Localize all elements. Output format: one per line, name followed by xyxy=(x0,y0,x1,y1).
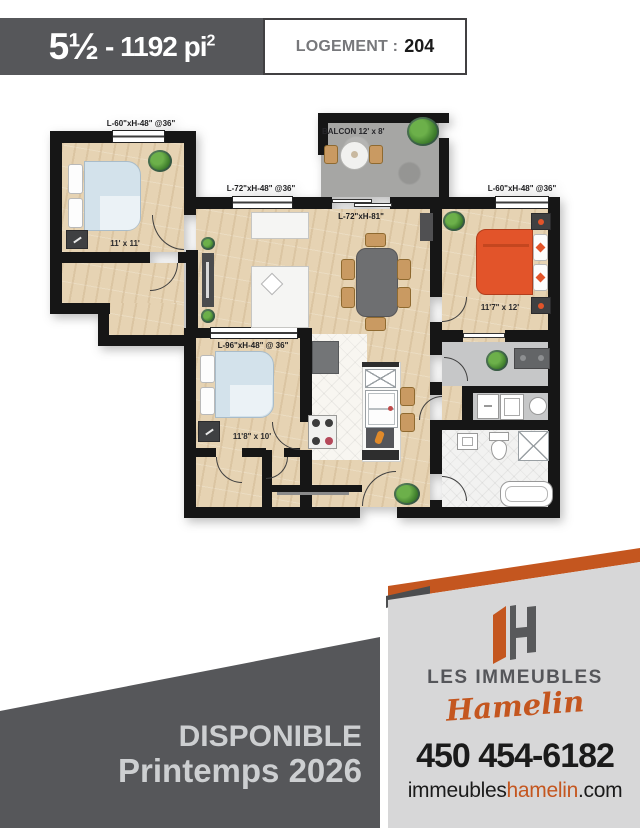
shower xyxy=(518,431,549,461)
window xyxy=(210,327,298,339)
island-stool xyxy=(400,387,415,406)
window-label-bedroom2: L-96"xH-48" @ 36" xyxy=(213,341,293,350)
phone-number: 450 454-6182 xyxy=(390,737,640,776)
laundry-sink xyxy=(500,394,524,420)
bedroom1-closet-nook-floor xyxy=(109,303,184,335)
wall xyxy=(293,197,327,209)
balcony-chair xyxy=(324,145,338,164)
plant-icon xyxy=(486,350,508,371)
wall xyxy=(186,250,198,338)
room-size-bedroom3: 11'7" x 12' xyxy=(470,303,530,312)
availability-text: DISPONIBLE Printemps 2026 xyxy=(60,721,362,789)
wall xyxy=(265,485,362,492)
plant-icon xyxy=(201,237,215,250)
dishwasher xyxy=(365,369,396,388)
hamelin-logo-icon xyxy=(490,598,540,664)
wall xyxy=(184,197,232,209)
bedroom2-pillow xyxy=(200,387,215,415)
console-shelf xyxy=(420,213,433,241)
wall xyxy=(442,330,463,342)
wall xyxy=(98,335,196,346)
room-size-bedroom1: 11' x 11' xyxy=(95,239,155,248)
window xyxy=(112,130,165,143)
bedroom1-nightstand xyxy=(66,230,88,249)
sofa-loveseat xyxy=(251,212,309,239)
fridge xyxy=(312,341,339,374)
wall xyxy=(390,197,449,209)
sofa-sectional xyxy=(251,266,309,328)
dining-chair xyxy=(397,259,411,280)
bedroom3-nightstand xyxy=(531,213,551,230)
wall xyxy=(430,382,442,395)
wall xyxy=(442,420,548,430)
bedroom3-bed xyxy=(476,229,533,295)
plant-icon xyxy=(407,117,439,146)
island-stool xyxy=(400,413,415,432)
balcony-chair xyxy=(369,145,383,164)
dining-chair xyxy=(365,317,386,331)
cutting-board xyxy=(366,428,394,448)
wall xyxy=(300,338,312,422)
wall xyxy=(184,328,210,338)
tv-console xyxy=(202,253,214,307)
bedroom1-pillow xyxy=(68,198,83,228)
wall xyxy=(184,338,196,518)
wall xyxy=(430,500,442,518)
dining-chair xyxy=(397,287,411,308)
bedroom1-pillow xyxy=(68,164,83,194)
plant-icon xyxy=(201,309,215,323)
dining-table xyxy=(356,248,398,317)
plant-icon xyxy=(394,483,420,505)
island-counter-end xyxy=(362,450,399,460)
wall xyxy=(430,420,442,474)
bedroom1-sheet xyxy=(100,196,140,230)
bedroom2-nightstand xyxy=(198,421,220,442)
website-part2: hamelin xyxy=(507,779,578,802)
flyer-page: 5½ - 1192 pi2 LOGEMENT : 204 xyxy=(0,0,640,828)
wall xyxy=(50,131,62,314)
kitchen-sink xyxy=(365,390,398,428)
wall xyxy=(298,328,312,338)
window xyxy=(495,196,549,209)
wall xyxy=(184,507,360,518)
bedroom2-sheet xyxy=(230,385,272,416)
bedroom3-pillow xyxy=(533,264,548,291)
window-label-bedroom3: L-60"xH-48" @36" xyxy=(482,184,562,193)
bedroom3-pillow xyxy=(533,234,548,261)
patio-door-panel xyxy=(354,203,392,207)
dining-chair xyxy=(341,287,355,308)
utility-basin xyxy=(529,397,547,415)
island-counter-end xyxy=(362,362,399,367)
bathtub xyxy=(500,481,553,507)
balcony-label: BALCON 12' x 8' xyxy=(322,127,384,136)
wall xyxy=(462,386,473,420)
window-label-living: L-72"xH-48" @36" xyxy=(221,184,301,193)
wall xyxy=(430,322,442,355)
closet-slider xyxy=(277,492,349,495)
bedroom2-pillow xyxy=(200,355,215,383)
plant-icon xyxy=(148,150,172,172)
closet-slider xyxy=(463,333,505,338)
website-part3: .com xyxy=(578,779,622,802)
utility-cabinet xyxy=(477,394,499,419)
balcony-wall xyxy=(439,138,449,197)
balcony-table xyxy=(340,141,369,170)
availability-line2: Printemps 2026 xyxy=(60,753,362,789)
availability-line1: DISPONIBLE xyxy=(60,721,362,753)
wall xyxy=(196,448,216,457)
room-size-bedroom2: 11'8" x 10' xyxy=(222,432,282,441)
wall xyxy=(505,330,548,342)
bathroom-sink xyxy=(457,433,478,450)
wall xyxy=(50,252,150,263)
wall xyxy=(397,507,560,518)
wall xyxy=(300,450,312,512)
patio-door-label: L-72"xH-81" xyxy=(330,212,392,221)
dining-chair xyxy=(341,259,355,280)
dining-chair xyxy=(365,233,386,247)
wall xyxy=(449,197,495,209)
window xyxy=(232,196,293,209)
plant-icon xyxy=(443,211,465,231)
brand-block: LES IMMEUBLES Hamelin 450 454-6182 immeu… xyxy=(390,598,640,803)
washer-dryer xyxy=(514,348,550,369)
wall xyxy=(473,386,548,393)
website-url: immeubleshamelin.com xyxy=(390,779,640,803)
website-part1: immeubles xyxy=(408,779,507,802)
stove xyxy=(308,415,337,449)
window-label-bedroom1: L-60"xH-48" @36" xyxy=(101,119,181,128)
bedroom3-nightstand xyxy=(531,297,551,314)
